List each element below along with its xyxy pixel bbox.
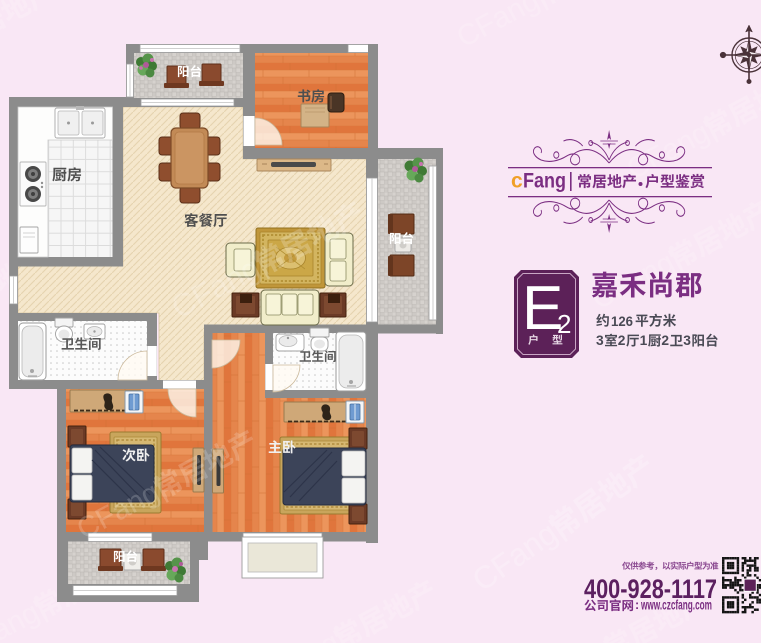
svg-text::: :: [635, 598, 639, 612]
svg-text:2: 2: [661, 333, 669, 348]
svg-text:1: 1: [640, 333, 648, 348]
svg-text:2: 2: [557, 309, 571, 339]
svg-text:2: 2: [618, 333, 626, 348]
svg-text:126: 126: [611, 314, 633, 330]
svg-text:3: 3: [596, 333, 604, 348]
svg-text:Fang: Fang: [523, 170, 566, 193]
svg-text:c: c: [511, 170, 523, 193]
svg-text:3: 3: [683, 333, 691, 348]
svg-text:www.czcfang.com: www.czcfang.com: [640, 598, 712, 613]
